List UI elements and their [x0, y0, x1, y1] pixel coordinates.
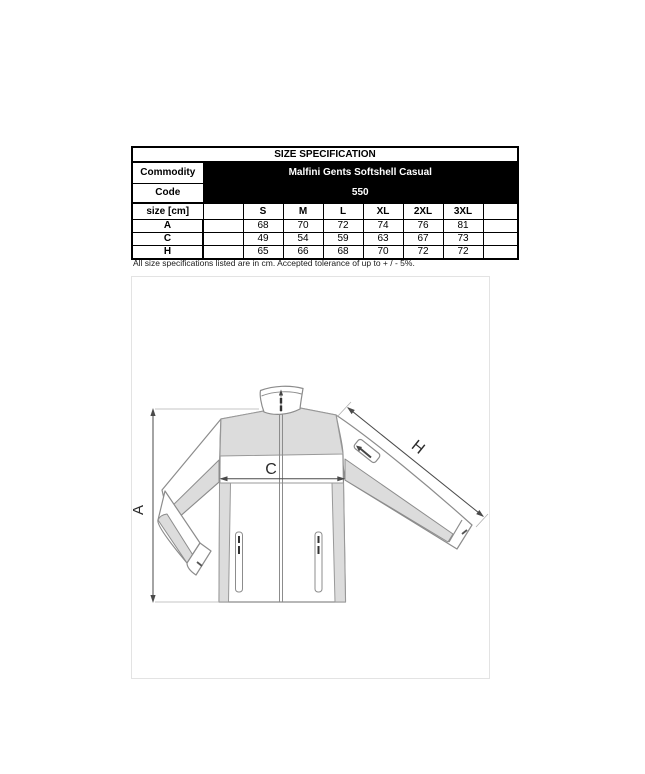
tolerance-note: All size specifications listed are in cm…: [133, 258, 415, 268]
value-cell: 54: [283, 233, 323, 246]
spacer-cell: [483, 203, 518, 220]
size-header-row: size [cm] S M L XL 2XL 3XL: [132, 203, 518, 220]
value-cell: 67: [403, 233, 443, 246]
size-col-3xl: 3XL: [443, 203, 483, 220]
spacer-cell: [203, 233, 243, 246]
measurement-label-h: H: [408, 437, 428, 457]
jacket-right-sleeve: [336, 415, 472, 549]
size-unit-label: size [cm]: [132, 203, 203, 220]
size-col-2xl: 2XL: [403, 203, 443, 220]
value-cell: 81: [443, 220, 483, 233]
value-cell: 68: [243, 220, 283, 233]
side-panel-left: [219, 483, 231, 602]
arrowhead-h-start: [347, 407, 355, 414]
code-label: Code: [132, 184, 203, 204]
code-row: Code 550: [132, 184, 518, 204]
spacer-cell: [203, 246, 243, 260]
value-cell: 72: [323, 220, 363, 233]
code-value: 550: [203, 184, 518, 204]
commodity-row: Commodity Malfini Gents Softshell Casual: [132, 162, 518, 184]
spacer-cell: [483, 233, 518, 246]
value-cell: 65: [243, 246, 283, 260]
value-cell: 70: [283, 220, 323, 233]
value-cell: 68: [323, 246, 363, 260]
arrowhead-a-bottom: [150, 595, 155, 603]
size-col-s: S: [243, 203, 283, 220]
spacer-cell: [203, 220, 243, 233]
value-cell: 76: [403, 220, 443, 233]
value-cell: 63: [363, 233, 403, 246]
value-cell: 73: [443, 233, 483, 246]
arrowhead-a-top: [150, 408, 155, 416]
table-row-c: C 49 54 59 63 67 73: [132, 233, 518, 246]
spacer-cell: [483, 220, 518, 233]
size-col-m: M: [283, 203, 323, 220]
measurement-label-c: C: [265, 461, 277, 478]
value-cell: 66: [283, 246, 323, 260]
row-label-h: H: [132, 246, 203, 260]
value-cell: 72: [443, 246, 483, 260]
size-col-l: L: [323, 203, 363, 220]
value-cell: 72: [403, 246, 443, 260]
row-label-a: A: [132, 220, 203, 233]
table-title: SIZE SPECIFICATION: [132, 147, 518, 162]
commodity-value: Malfini Gents Softshell Casual: [203, 162, 518, 184]
table-title-row: SIZE SPECIFICATION: [132, 147, 518, 162]
row-label-c: C: [132, 233, 203, 246]
value-cell: 49: [243, 233, 283, 246]
table-row-h: H 65 66 68 70 72 72: [132, 246, 518, 260]
page: SIZE SPECIFICATION Commodity Malfini Gen…: [0, 0, 645, 774]
jacket-collar: [260, 386, 303, 414]
spacer-cell: [483, 246, 518, 260]
value-cell: 59: [323, 233, 363, 246]
size-col-xl: XL: [363, 203, 403, 220]
jacket-drawing: A C H: [132, 277, 489, 678]
commodity-label: Commodity: [132, 162, 203, 184]
measurement-label-a: A: [132, 505, 147, 515]
jacket-diagram-box: A C H: [131, 276, 490, 679]
jacket-body: [219, 408, 346, 602]
value-cell: 70: [363, 246, 403, 260]
jacket-left-sleeve: [158, 419, 221, 575]
table-row-a: A 68 70 72 74 76 81: [132, 220, 518, 233]
size-specification-table: SIZE SPECIFICATION Commodity Malfini Gen…: [131, 146, 519, 260]
value-cell: 74: [363, 220, 403, 233]
spacer-cell: [203, 203, 243, 220]
